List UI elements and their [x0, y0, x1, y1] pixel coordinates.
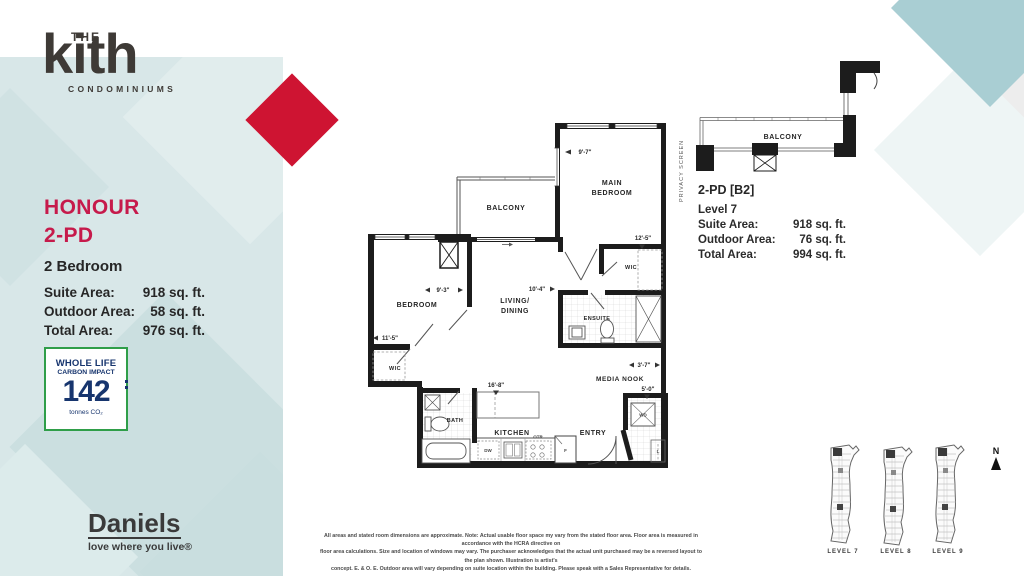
label-ensuite: ENSUITE	[584, 316, 611, 322]
table-row: Total Area: 976 sq. ft.	[44, 323, 205, 338]
carbon-dots-decoration	[125, 380, 128, 392]
label-media-nook: MEDIA NOOK	[596, 376, 644, 383]
daniels-logo: Daniels love where you live®	[88, 510, 192, 553]
column	[440, 242, 458, 268]
tower-level-9	[936, 445, 964, 543]
dim-arrow	[565, 150, 571, 155]
dim-arrow	[655, 363, 660, 368]
north-arrow: N	[989, 446, 1003, 470]
area-value: 918 sq. ft.	[793, 219, 846, 231]
area-label: Outdoor Area:	[44, 304, 135, 319]
main-floorplan: BALCONY MAIN BEDROOM BEDROOM LIVING/ DIN…	[355, 100, 700, 490]
privacy-screen-label: PRIVACY SCREEN	[679, 140, 685, 202]
label-dining: DINING	[501, 308, 529, 315]
dim-arrow	[425, 288, 430, 293]
logo-wordmark: kith	[42, 27, 202, 80]
level-keyplans	[815, 440, 1015, 560]
area-value: 76 sq. ft.	[799, 234, 846, 246]
dim-12-5: 12'-5"	[635, 236, 651, 242]
dim-arrow	[629, 363, 634, 368]
dim-5-0: 5'-0"	[642, 387, 655, 393]
carbon-units: tonnes CO₂	[46, 409, 126, 416]
dim-10-4: 10'-4"	[529, 287, 545, 293]
carbon-value: 142	[46, 377, 126, 407]
keyplan-info: 2-PD [B2] Level 7 Suite Area: 918 sq. ft…	[698, 183, 846, 261]
area-value: 976 sq. ft.	[143, 323, 205, 338]
daniels-wordmark: Daniels	[88, 510, 181, 539]
table-row: Suite Area: 918 sq. ft.	[44, 285, 205, 300]
label-bedroom: BEDROOM	[397, 302, 438, 309]
carbon-impact-badge: WHOLE LIFE CARBON IMPACT 142 tonnes CO₂	[44, 347, 128, 431]
area-label: Total Area:	[698, 249, 757, 261]
area-label: Total Area:	[44, 323, 113, 338]
tower-level-8	[884, 447, 912, 545]
level-7-label: LEVEL 7	[823, 549, 863, 555]
dim-9-7: 9'-7"	[579, 150, 592, 156]
daniels-tagline: love where you live®	[88, 541, 192, 553]
kith-logo: THE kith CONDOMINIUMS	[42, 27, 202, 94]
unit-code: 2-PD	[44, 224, 93, 248]
area-label: Suite Area:	[44, 285, 115, 300]
label-bath: BATH	[447, 418, 463, 424]
area-value: 918 sq. ft.	[143, 285, 205, 300]
keyplan-window-v	[844, 93, 848, 115]
tower-level-7	[831, 445, 859, 543]
unit-area-table: Suite Area: 918 sq. ft. Outdoor Area: 58…	[44, 281, 205, 338]
label-fridge: F	[564, 448, 567, 453]
table-row: Suite Area: 918 sq. ft.	[698, 219, 846, 231]
area-label: Outdoor Area:	[698, 234, 776, 246]
area-label: Suite Area:	[698, 219, 758, 231]
area-value: 58 sq. ft.	[150, 304, 205, 319]
disclaimer-line: concept. E. & O. E. Outdoor area will va…	[318, 565, 704, 573]
label-wd: WD	[639, 413, 647, 418]
dim-11-5: 11'-5"	[382, 336, 398, 342]
label-balcony: BALCONY	[487, 205, 526, 212]
logo-the: THE	[71, 30, 101, 44]
keyplan-title: 2-PD [B2]	[698, 183, 846, 197]
label-dishwasher: DW	[484, 448, 492, 453]
dim-9-3: 9'-3"	[437, 288, 450, 294]
label-wic-main: WIC	[625, 265, 637, 271]
carbon-title-1: WHOLE LIFE	[46, 358, 126, 369]
label-main-bedroom-2: BEDROOM	[592, 190, 633, 197]
unit-name: HONOUR	[44, 196, 140, 220]
table-row: Outdoor Area: 76 sq. ft.	[698, 234, 846, 246]
north-arrow-icon	[991, 457, 1001, 470]
label-main-bedroom: MAIN	[602, 180, 622, 187]
keyplan-detail	[874, 73, 877, 89]
dim-arrow	[458, 288, 463, 293]
label-entry: ENTRY	[580, 430, 606, 437]
label-living: LIVING/	[500, 298, 529, 305]
keyplan-walls	[696, 61, 880, 171]
table-row: Outdoor Area: 58 sq. ft.	[44, 304, 205, 319]
disclaimer-line: All areas and stated room dimensions are…	[318, 532, 704, 548]
keyplan-railing	[700, 118, 848, 148]
keyplan-balcony: BALCONY	[688, 55, 888, 175]
closet-dashes	[373, 250, 662, 460]
label-linen: L	[657, 449, 660, 454]
level-9-label: LEVEL 9	[928, 549, 968, 555]
dim-3-7: 3'-7"	[638, 363, 651, 369]
dim-16-8: 16'-8"	[488, 383, 504, 389]
unit-type: 2 Bedroom	[44, 258, 122, 275]
table-row: Total Area: 994 sq. ft.	[698, 249, 846, 261]
level-8-label: LEVEL 8	[876, 549, 916, 555]
keyplan-balcony-label: BALCONY	[764, 134, 803, 141]
panel-diamond	[0, 88, 109, 286]
disclaimer: All areas and stated room dimensions are…	[318, 532, 704, 573]
keyplan-level: Level 7	[698, 204, 846, 216]
logo-condominiums: CONDOMINIUMS	[68, 84, 202, 94]
dim-arrow	[550, 287, 555, 292]
north-label: N	[989, 446, 1003, 456]
area-value: 994 sq. ft.	[793, 249, 846, 261]
disclaimer-line: floor area calculations. Size and locati…	[318, 548, 704, 564]
label-wic-bedroom: WIC	[389, 366, 401, 372]
kitchen-fixtures	[477, 392, 576, 463]
label-kitchen: KITCHEN	[494, 430, 529, 437]
label-otr: OTR	[533, 435, 543, 440]
